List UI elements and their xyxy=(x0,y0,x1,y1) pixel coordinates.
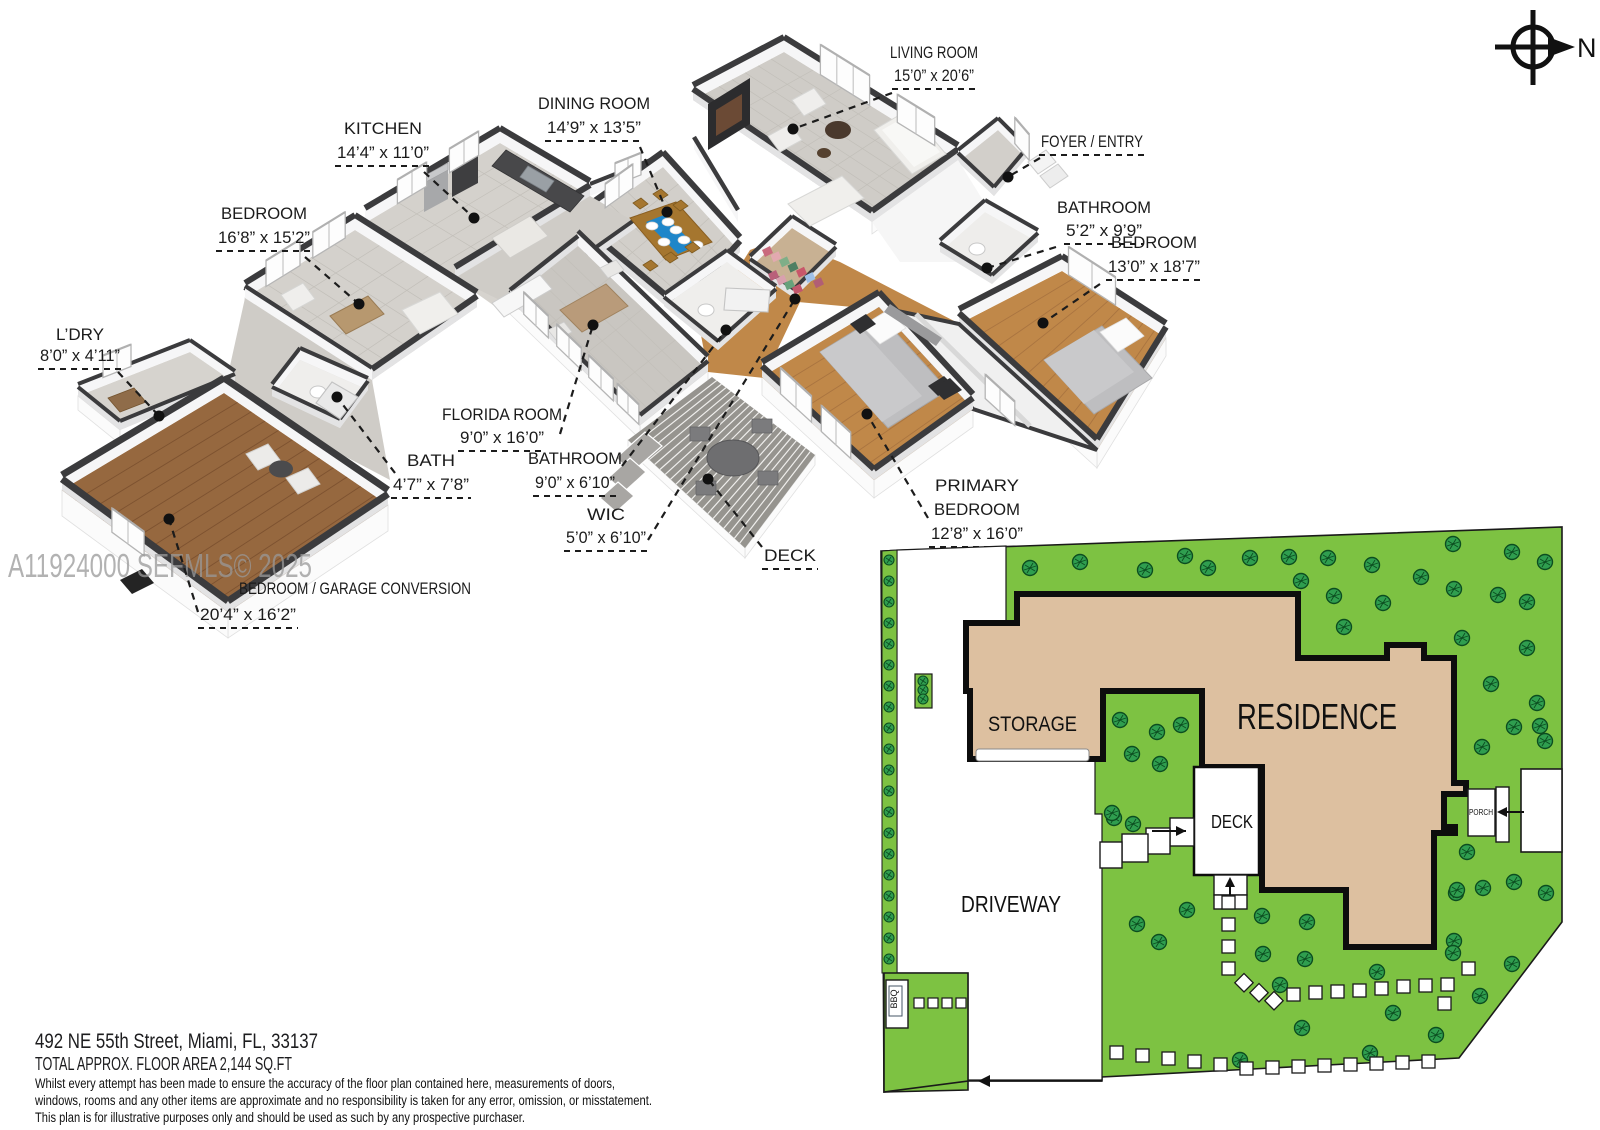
svg-text:LIVING ROOM: LIVING ROOM xyxy=(890,43,978,62)
svg-text:PORCH: PORCH xyxy=(1469,808,1493,817)
svg-text:12’8” x 16’0”: 12’8” x 16’0” xyxy=(931,524,1023,543)
svg-text:DRIVEWAY: DRIVEWAY xyxy=(961,891,1061,917)
svg-text:16’8” x 15’2”: 16’8” x 15’2” xyxy=(218,228,310,247)
svg-text:windows, rooms and any other i: windows, rooms and any other items are a… xyxy=(34,1093,652,1108)
svg-text:14’9” x 13’5”: 14’9” x 13’5” xyxy=(547,118,641,137)
svg-text:STORAGE: STORAGE xyxy=(988,713,1077,736)
svg-text:BATHROOM: BATHROOM xyxy=(1057,198,1151,217)
svg-text:BEDROOM: BEDROOM xyxy=(934,500,1020,519)
svg-text:This plan is for illustrative: This plan is for illustrative purposes o… xyxy=(35,1110,525,1125)
svg-text:8’0” x 4’11”: 8’0” x 4’11” xyxy=(40,346,120,365)
svg-text:TOTAL APPROX. FLOOR AREA 2,144: TOTAL APPROX. FLOOR AREA 2,144 SQ.FT xyxy=(35,1053,292,1074)
svg-text:DINING ROOM: DINING ROOM xyxy=(538,94,650,113)
svg-text:BEDROOM / GARAGE CONVERSION: BEDROOM / GARAGE CONVERSION xyxy=(239,579,471,598)
svg-text:9’0” x 16’0”: 9’0” x 16’0” xyxy=(460,428,544,447)
svg-text:13’0” x 18’7”: 13’0” x 18’7” xyxy=(1108,257,1200,276)
svg-text:DECK: DECK xyxy=(1211,812,1253,832)
svg-text:4’7” x 7’8”: 4’7” x 7’8” xyxy=(393,475,469,494)
svg-text:14’4” x 11’0”: 14’4” x 11’0” xyxy=(337,143,429,162)
svg-text:15’0” x 20’6”: 15’0” x 20’6” xyxy=(894,66,974,85)
svg-text:9’0” x 6’10”: 9’0” x 6’10” xyxy=(535,473,615,492)
svg-text:BATHROOM: BATHROOM xyxy=(528,449,622,468)
svg-text:RESIDENCE: RESIDENCE xyxy=(1237,696,1397,737)
svg-text:BBQ: BBQ xyxy=(889,989,899,1008)
svg-text:492 NE 55th Street, Miami, FL,: 492 NE 55th Street, Miami, FL, 33137 xyxy=(35,1030,318,1053)
svg-text:WIC: WIC xyxy=(587,505,625,524)
svg-text:Whilst every attempt has been: Whilst every attempt has been made to en… xyxy=(35,1076,615,1091)
svg-text:FLORIDA ROOM: FLORIDA ROOM xyxy=(442,405,562,424)
svg-text:PRIMARY: PRIMARY xyxy=(935,476,1019,495)
svg-text:BEDROOM: BEDROOM xyxy=(1111,233,1197,252)
svg-text:FOYER / ENTRY: FOYER / ENTRY xyxy=(1041,132,1143,151)
svg-text:KITCHEN: KITCHEN xyxy=(344,119,422,138)
svg-text:N: N xyxy=(1577,33,1597,63)
svg-text:20’4” x 16’2”: 20’4” x 16’2” xyxy=(200,605,296,624)
svg-text:5’0” x 6’10”: 5’0” x 6’10” xyxy=(566,528,646,547)
svg-text:BATH: BATH xyxy=(407,451,455,470)
svg-text:L’DRY: L’DRY xyxy=(56,325,104,344)
svg-text:DECK: DECK xyxy=(764,546,817,565)
svg-text:BEDROOM: BEDROOM xyxy=(221,204,307,223)
